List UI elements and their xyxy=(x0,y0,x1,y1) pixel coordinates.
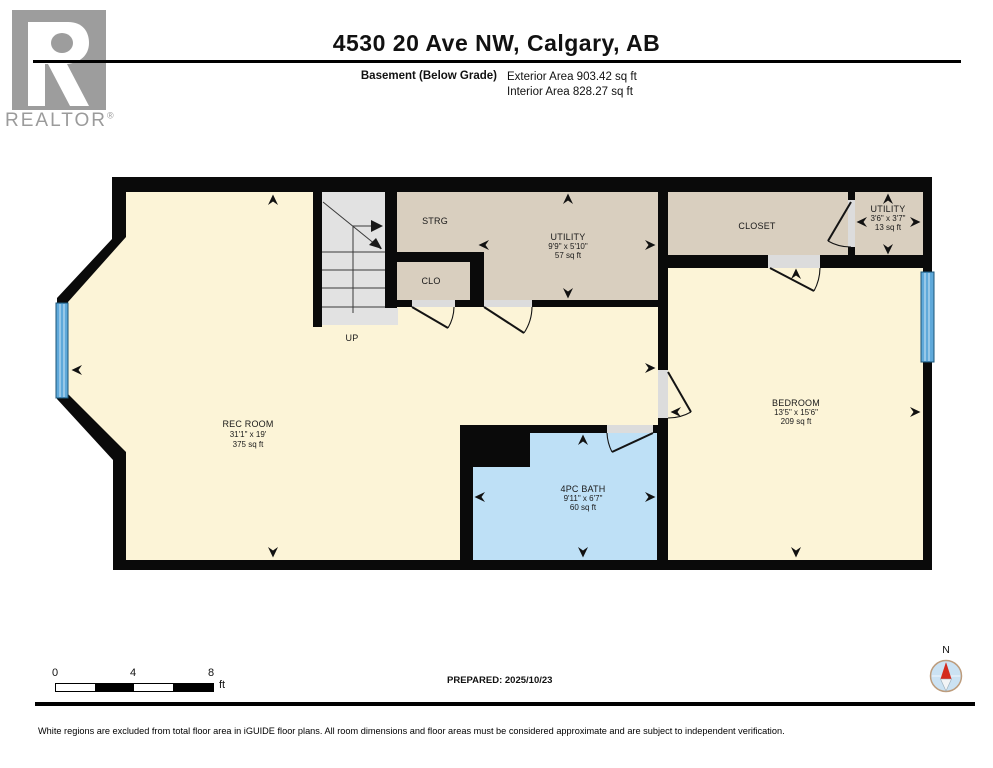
utility-small-area: 13 sq ft xyxy=(875,223,902,232)
bath-dims: 9'11" x 6'7" xyxy=(564,494,603,503)
realtor-text: REALTOR xyxy=(5,110,107,131)
registered-mark: ® xyxy=(107,111,116,121)
bedroom-area: 209 sq ft xyxy=(781,417,812,426)
compass: N xyxy=(926,641,966,701)
rec-room-dims: 31'1" x 19' xyxy=(230,430,267,439)
logo-r-stem xyxy=(28,22,45,106)
bath-label: 4PC BATH xyxy=(561,484,606,494)
bedroom-dims: 13'5" x 15'6" xyxy=(774,408,818,417)
rec-room-area: 375 sq ft xyxy=(233,440,264,449)
strg-label: STRG xyxy=(422,216,448,226)
utility-small-label: UTILITY xyxy=(871,204,906,214)
floor-plan: STRG CLO UTILITY 9'9" x 5'10" 57 sq ft C… xyxy=(0,0,993,768)
bath-area: 60 sq ft xyxy=(570,503,597,512)
bedroom-window xyxy=(921,272,934,362)
utility-main-area: 57 sq ft xyxy=(555,251,582,260)
utility-small-dims: 3'6" x 3'7" xyxy=(871,214,906,223)
compass-north-label: N xyxy=(942,644,950,656)
utility-main-label: UTILITY xyxy=(551,232,586,242)
realtor-wordmark: REALTOR® xyxy=(5,110,116,132)
closet-label: CLOSET xyxy=(738,221,776,231)
rec-room-label: REC ROOM xyxy=(222,419,273,429)
left-window xyxy=(56,303,68,398)
logo-r-counter xyxy=(51,33,73,53)
stairs-up-label: UP xyxy=(346,333,359,343)
clo-label: CLO xyxy=(421,276,440,286)
title-divider xyxy=(33,60,961,63)
utility-main-dims: 9'9" x 5'10" xyxy=(548,242,588,251)
bedroom-label: BEDROOM xyxy=(772,398,820,408)
